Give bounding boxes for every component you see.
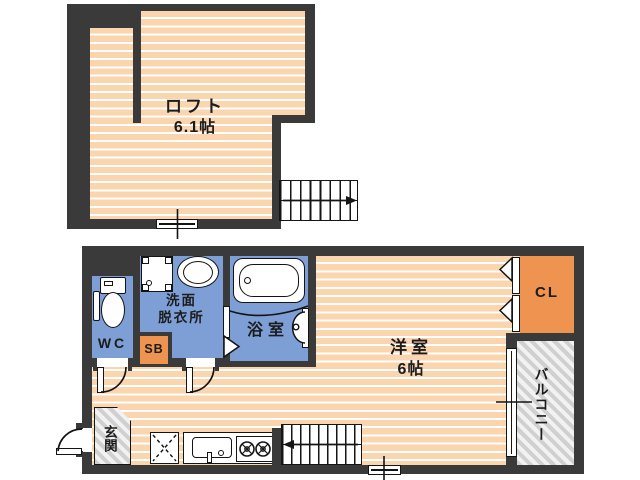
- closet-door-panel-top: [512, 257, 520, 294]
- pan-corner-br: [165, 284, 172, 291]
- entrance-door-leaf: [56, 448, 82, 455]
- loft-notch-wall-h: [272, 115, 315, 123]
- washing-machine-pan-icon: [141, 256, 173, 292]
- shoebox-label: SB: [139, 342, 169, 358]
- balcony-window: [506, 348, 517, 457]
- stairs-upper: [279, 180, 358, 221]
- stairs-upper-midline: [280, 200, 357, 202]
- balcony-window-stub-bottom: [506, 457, 517, 467]
- main-room-bottom-window: [368, 465, 401, 475]
- washbasin-inner: [183, 261, 213, 284]
- washroom-label: 洗面 脱衣所: [140, 293, 223, 327]
- toilet-handle: [104, 281, 113, 286]
- kitchen-sink-icon: [192, 437, 232, 458]
- toilet-side-panel: [93, 291, 100, 321]
- entrance-jamb-top: [76, 423, 83, 429]
- main-room-label: 洋室: [358, 337, 464, 358]
- stairs-lower: [281, 424, 362, 465]
- pan-drain: [146, 280, 152, 286]
- pan-corner-tr: [165, 257, 172, 264]
- wc-label: WC: [92, 335, 133, 353]
- pan-corner-tl: [142, 257, 149, 264]
- closet-label: CL: [520, 284, 574, 303]
- bottom-window-midline: [371, 469, 398, 471]
- floor-plan-canvas: ロフト 6.1帖: [0, 0, 640, 480]
- closet-balcony-wall: [506, 333, 574, 341]
- stairs-lower-wall: [272, 428, 281, 465]
- balcony-label: バルコニー: [532, 352, 550, 456]
- loft-room-label: ロフト: [140, 96, 250, 117]
- washroom-door-jamb-r: [215, 359, 219, 371]
- bath-label: 浴室: [228, 321, 308, 341]
- entrance-label: 玄関: [100, 415, 117, 461]
- washroom-door-leaf: [186, 367, 193, 393]
- closet-door-panel-bottom: [512, 295, 520, 332]
- main-room-area-label: 6帖: [358, 360, 464, 380]
- bathtub-drain: [244, 277, 251, 284]
- washroom-door-opening: [186, 358, 215, 367]
- kitchen-faucet: [207, 452, 212, 463]
- stairs-lower-midline: [282, 444, 361, 446]
- refrigerator-space-icon: [150, 432, 179, 464]
- wc-door-leaf: [97, 367, 104, 393]
- balcony-window-stub-top: [506, 341, 517, 348]
- stove-icon: [236, 436, 273, 462]
- loft-window-midline: [159, 223, 195, 225]
- loft-top-left-wall: [67, 4, 141, 28]
- entrance-door-opening: [82, 428, 92, 452]
- wc-door-opening: [97, 358, 128, 367]
- kitchen-drain: [218, 450, 224, 456]
- loft-area-label: 6.1帖: [140, 118, 250, 138]
- loft-window: [156, 219, 198, 229]
- toilet-bowl-icon: [101, 292, 125, 328]
- balcony-window-midline: [511, 351, 513, 454]
- wc-door-jamb-r: [128, 359, 132, 371]
